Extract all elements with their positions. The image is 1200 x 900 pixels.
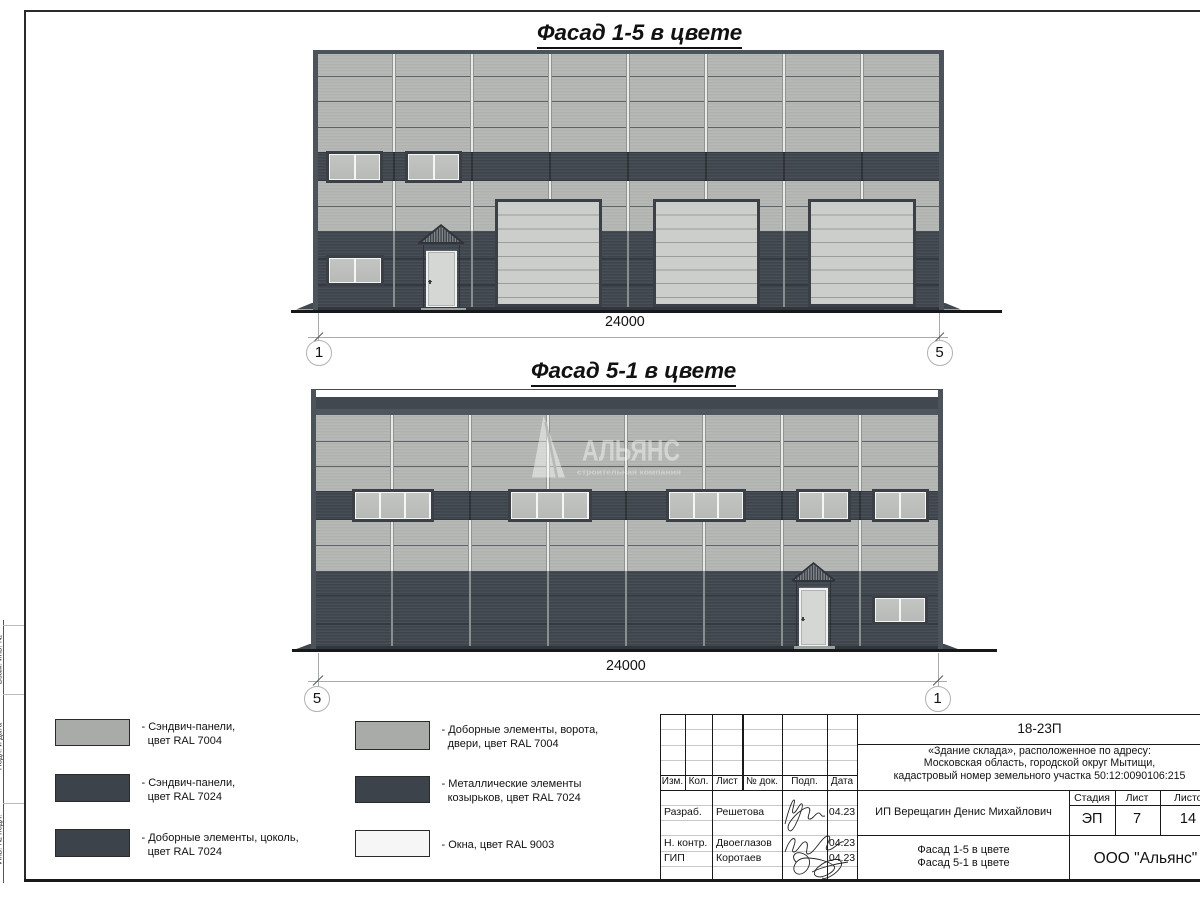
svg-text:строительная компания: строительная компания [577,468,681,477]
svg-text:АЛЬЯНС: АЛЬЯНС [582,435,680,468]
